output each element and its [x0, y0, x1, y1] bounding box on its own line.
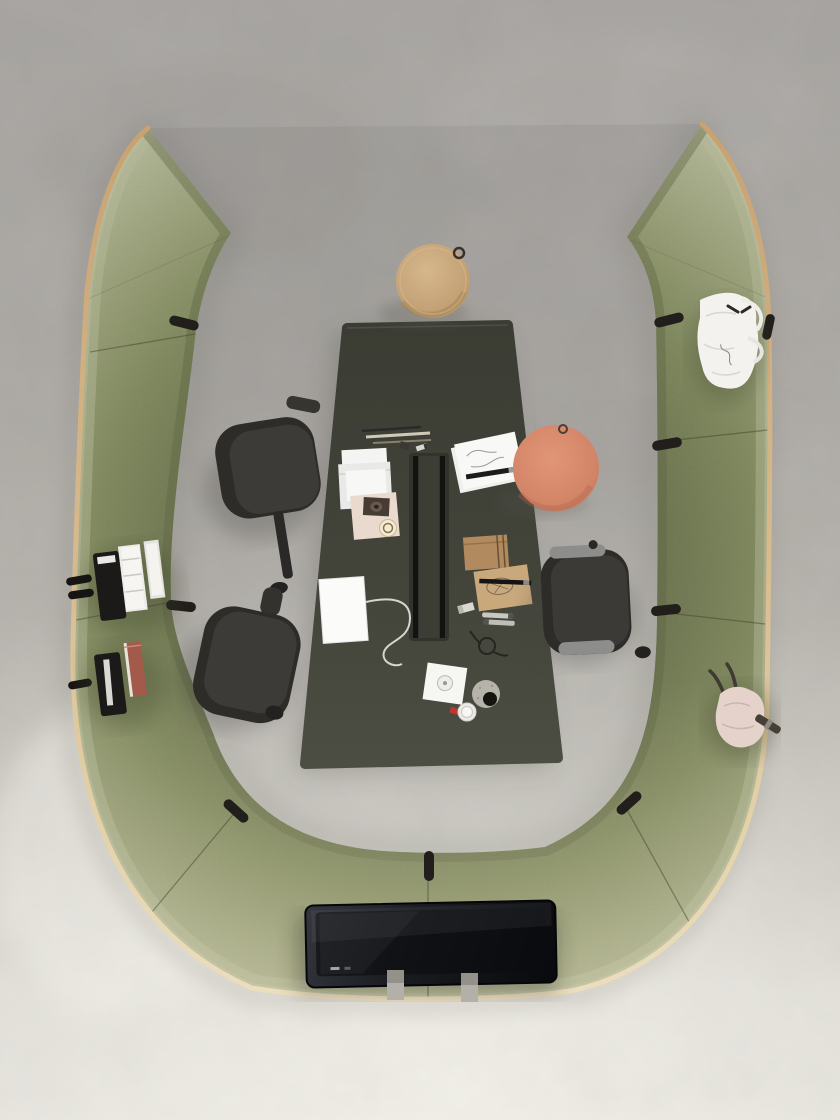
meeting-pod-scene	[0, 0, 840, 1120]
white-tablet	[319, 576, 372, 647]
white-tote-bag	[690, 293, 762, 402]
chair-seat	[550, 554, 631, 650]
strap-clip	[424, 851, 434, 881]
speckled-bowl	[472, 680, 500, 708]
kraft-envelope	[473, 564, 534, 611]
tv-logo	[330, 967, 339, 970]
cable-tray	[409, 453, 449, 641]
photo-canvas	[0, 0, 840, 1120]
flat-screen-tv	[296, 900, 558, 1002]
tan-folder	[463, 535, 509, 571]
coaster-pad	[423, 663, 468, 705]
meeting-table	[297, 325, 558, 771]
badge	[380, 520, 397, 537]
chair-seat	[226, 421, 322, 517]
